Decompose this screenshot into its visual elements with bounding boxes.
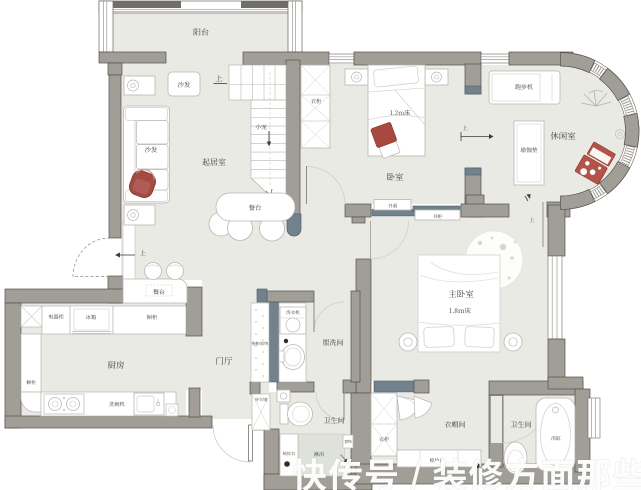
svg-text:厨房: 厨房: [107, 359, 125, 371]
svg-text:拖帕收纳: 拖帕收纳: [252, 341, 269, 347]
svg-text:卫生间: 卫生间: [324, 416, 345, 426]
svg-text:盥洗间: 盥洗间: [323, 338, 344, 348]
svg-text:跑步机: 跑步机: [515, 82, 533, 91]
svg-text:上: 上: [216, 74, 223, 84]
svg-text:卧室: 卧室: [386, 171, 404, 183]
svg-text:衣帽间: 衣帽间: [445, 420, 466, 430]
svg-text:置物: 置物: [344, 439, 352, 445]
svg-text:上: 上: [529, 216, 535, 224]
svg-text:上: 上: [462, 124, 468, 132]
svg-text:瑜伽垫: 瑜伽垫: [520, 145, 538, 154]
svg-text:洗碗机: 洗碗机: [109, 401, 125, 408]
svg-text:书桌: 书桌: [388, 203, 398, 210]
svg-text:餐台: 餐台: [249, 203, 263, 212]
svg-text:穿衣镜: 穿衣镜: [255, 397, 268, 403]
svg-text:休闲室: 休闲室: [550, 130, 576, 142]
svg-text:卫生间: 卫生间: [511, 420, 532, 430]
svg-text:阳台: 阳台: [193, 27, 209, 38]
svg-text:衣柜: 衣柜: [379, 436, 389, 443]
svg-text:1.8m床: 1.8m床: [449, 305, 471, 315]
svg-text:上: 上: [140, 249, 147, 258]
svg-text:衣柜: 衣柜: [311, 97, 322, 105]
svg-text:小宠: 小宠: [255, 122, 267, 131]
svg-text:橱柜: 橱柜: [147, 314, 158, 321]
svg-text:起居室: 起居室: [202, 157, 226, 168]
svg-text:沙发: 沙发: [145, 145, 159, 154]
svg-text:浴缸: 浴缸: [551, 435, 561, 442]
svg-text:沙发: 沙发: [178, 80, 192, 89]
svg-text:电器柜: 电器柜: [48, 314, 64, 321]
svg-text:洗衣机: 洗衣机: [286, 310, 300, 316]
svg-text:主卧室: 主卧室: [448, 288, 474, 300]
svg-text:橱柜: 橱柜: [26, 379, 36, 386]
svg-text:冰箱: 冰箱: [86, 314, 96, 321]
svg-text:书柜: 书柜: [433, 213, 443, 220]
svg-text:门厅: 门厅: [215, 355, 233, 367]
svg-text:1.2m床: 1.2m床: [390, 108, 411, 117]
svg-text:餐台: 餐台: [153, 287, 165, 296]
